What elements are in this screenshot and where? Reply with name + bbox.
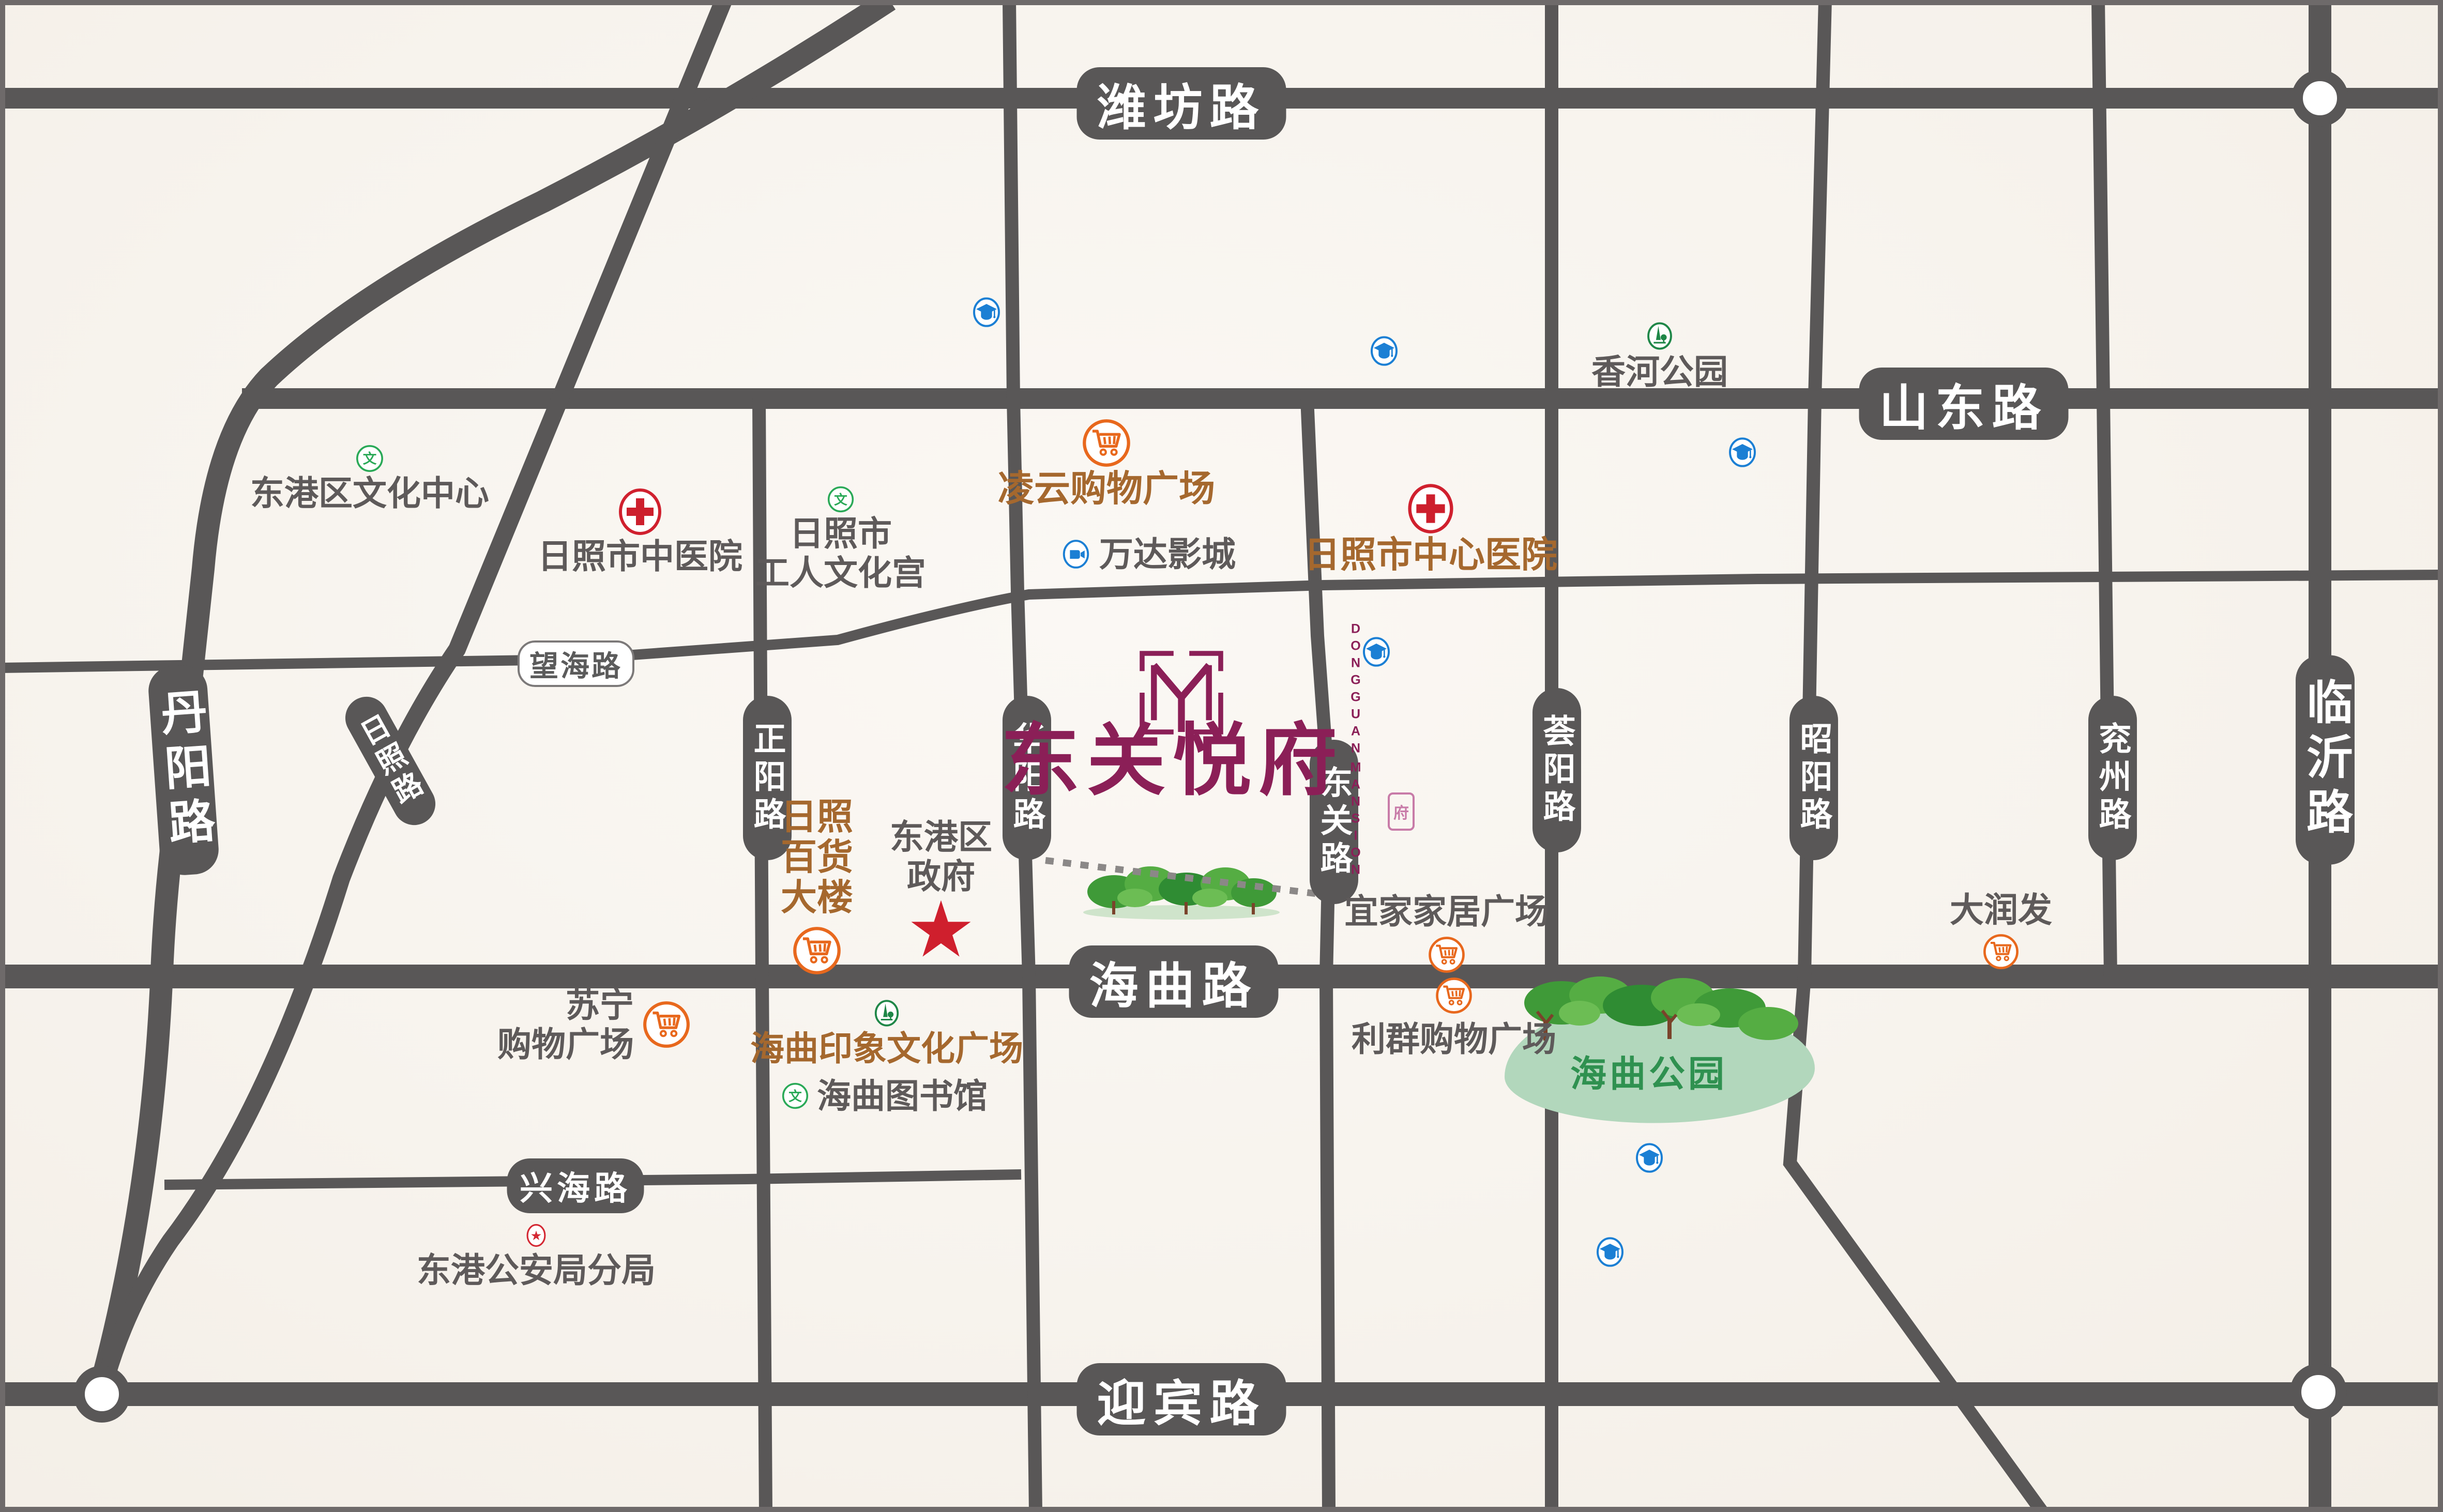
hospital-icon	[615, 487, 665, 537]
education-icon	[1726, 435, 1759, 470]
cinema-icon	[1060, 538, 1092, 570]
education-icon	[1368, 333, 1401, 369]
poi-liqun-plaza: 利群购物广场	[1352, 976, 1556, 1059]
shopping-cart-icon	[1081, 417, 1132, 469]
poi-suning-plaza: 苏宁 购物广场	[497, 985, 692, 1064]
poi-xianghe-park: 香河公园	[1591, 320, 1728, 391]
education-icon	[970, 295, 1003, 330]
culture-icon: 文	[355, 444, 385, 474]
poi-donggang-culture-center: 文 东港区文化中心	[250, 444, 489, 513]
svg-text:文: 文	[363, 451, 377, 467]
poi-rizhao-tcm-hospital: 日照市中医院	[538, 487, 742, 576]
project-name-english: DONGGUANMANSION	[1348, 622, 1363, 880]
road-label-weifang: 潍坊路	[1077, 67, 1286, 140]
poi-workers-culture-palace: 文 日照市 工人文化宫	[755, 485, 926, 592]
road-label-huiyang: 荟阳路	[1532, 688, 1581, 852]
shopping-cart-icon	[1434, 976, 1474, 1015]
road-label-wanghai: 望海路	[518, 640, 634, 687]
police-star-icon: ★	[521, 1220, 551, 1250]
poi-lingyun-plaza: 凌云购物广场	[998, 417, 1215, 508]
poi-wanda-cinema: 万达影城	[1060, 534, 1236, 574]
poi-darunfa: 大润发	[1950, 890, 2052, 971]
poi-yijia-home-plaza: 宜家家居广场	[1344, 892, 1549, 974]
shopping-cart-icon	[791, 925, 843, 976]
hospital-icon	[1404, 482, 1457, 535]
culture-icon: 文	[781, 1081, 810, 1110]
poi-haiqu-park-label: 海曲公园	[1570, 1045, 1727, 1097]
shopping-cart-icon	[641, 999, 692, 1050]
park-icon	[1644, 320, 1676, 352]
park-icon	[871, 998, 902, 1029]
road-label-linyi: 临沂路	[2296, 655, 2355, 865]
education-icon	[1360, 634, 1393, 669]
road-label-shandong: 山东路	[1859, 368, 2069, 440]
svg-text:文: 文	[834, 492, 847, 507]
poi-haiqu-library: 文 海曲图书馆	[781, 1076, 988, 1116]
poi-rizhao-department-store: 日照 百货 大楼	[781, 797, 853, 976]
shopping-cart-icon	[1982, 933, 2020, 971]
road-label-danyang: 丹阳路	[147, 664, 220, 877]
poi-donggang-police-branch: ★ 东港公安局分局	[417, 1220, 656, 1290]
poi-donggang-district-government: 东港区 政府 ★	[890, 817, 992, 963]
road-label-yingbin: 迎宾路	[1077, 1363, 1286, 1435]
road-label-zhaoyang: 昭阳路	[1789, 696, 1838, 860]
svg-text:文: 文	[788, 1088, 802, 1104]
poi-haiqu-impression-plaza: 海曲印象文化广场	[750, 998, 1023, 1068]
government-star-icon: ★	[906, 896, 976, 963]
shopping-cart-icon	[1427, 935, 1466, 974]
project-seal-icon: 府	[1388, 792, 1415, 831]
road-label-yanzhou: 兖州路	[2088, 696, 2137, 860]
education-icon	[1594, 1234, 1627, 1270]
road-label-xinghai: 兴海路	[507, 1158, 644, 1213]
poi-rizhao-central-hospital: 日照市中心医院	[1304, 482, 1557, 574]
project-name: 东关悦府	[1001, 697, 1344, 811]
road-label-haiqu: 海曲路	[1069, 945, 1279, 1018]
location-map: 潍坊路 山东路 海曲路 迎宾路 望海路 兴海路 丹阳路 日照路 正阳路 华阳路 …	[0, 0, 2443, 1512]
education-icon	[1633, 1140, 1666, 1175]
culture-icon: 文	[826, 485, 855, 514]
svg-text:★: ★	[530, 1229, 542, 1243]
